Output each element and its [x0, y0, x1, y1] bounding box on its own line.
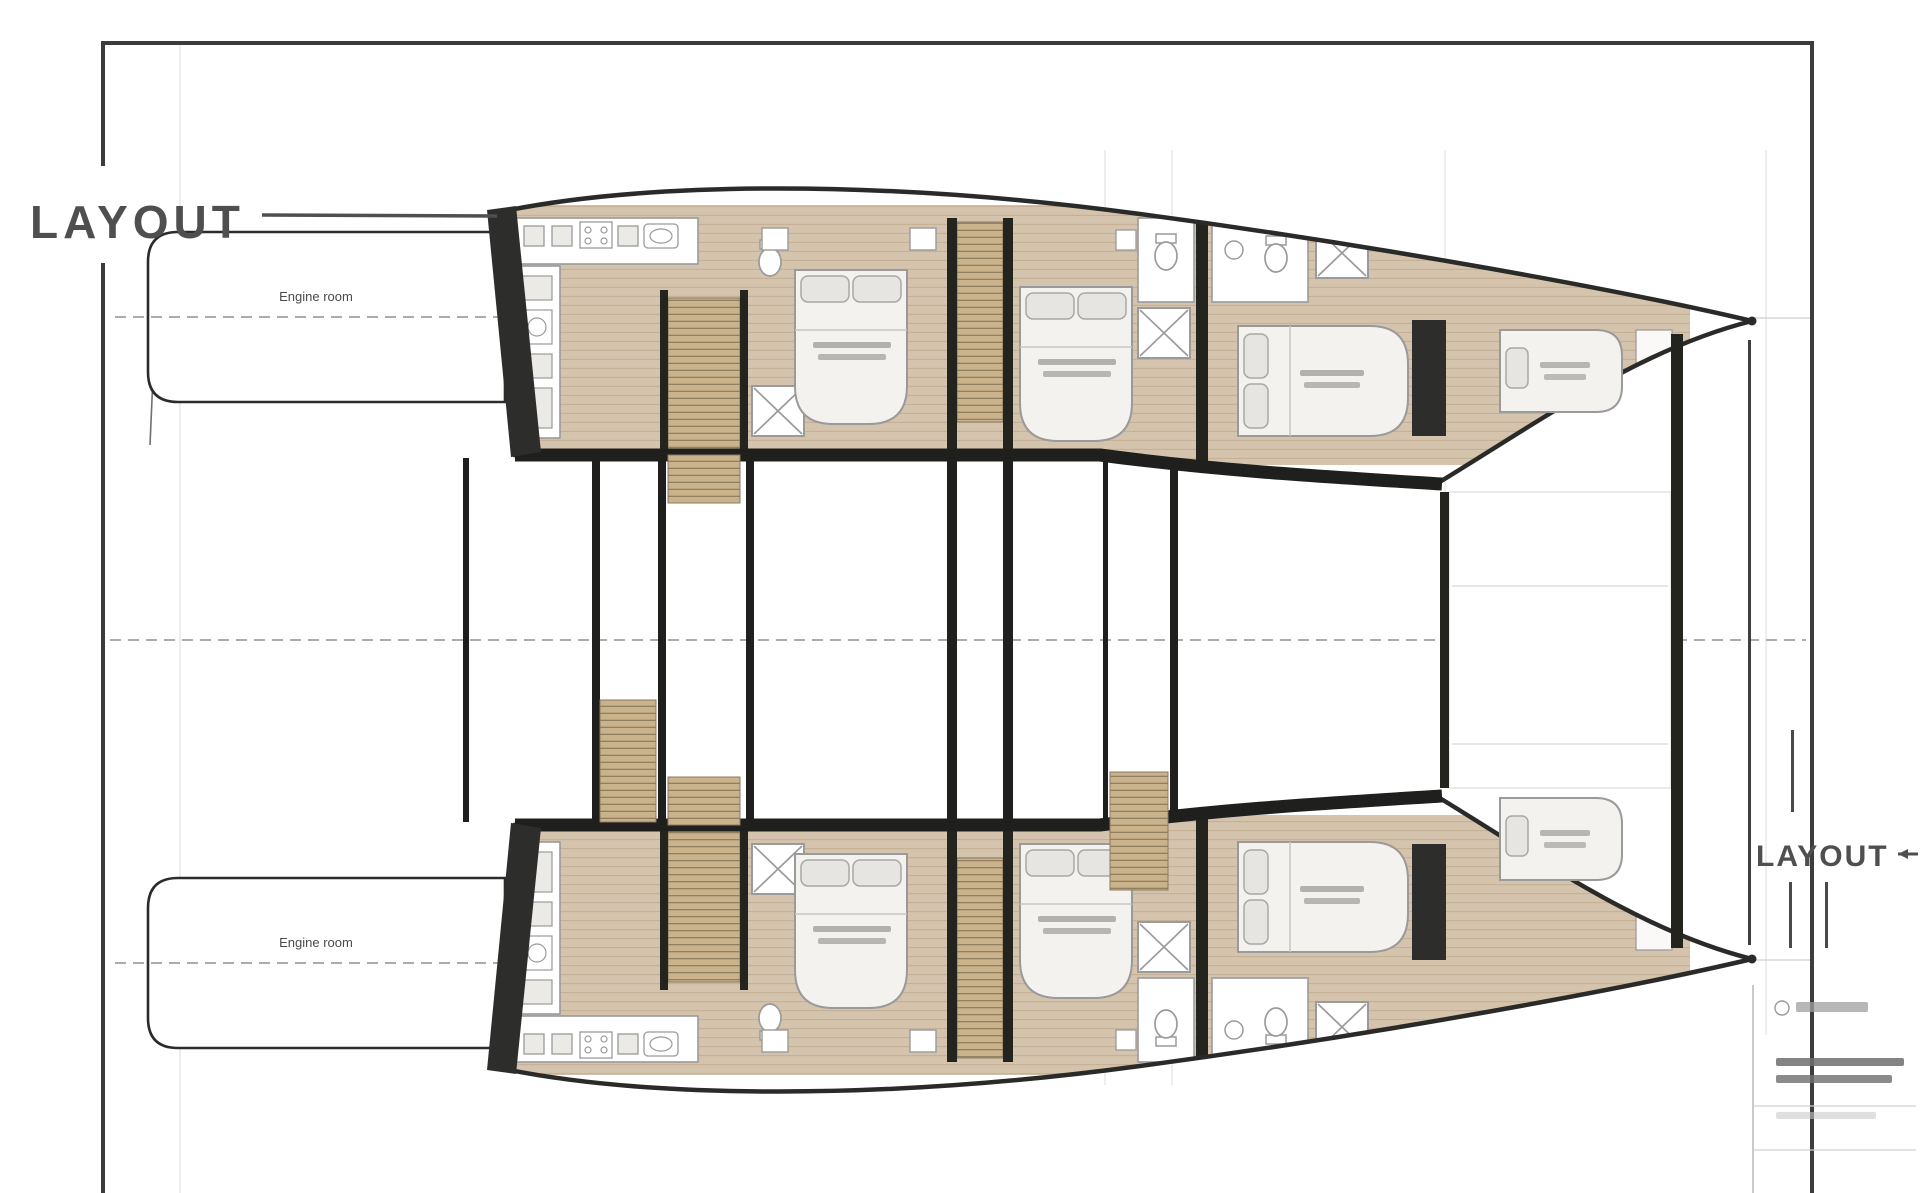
- drawing-sheet: Engine room Engine room LAYOUT LAYOUT: [0, 0, 1920, 1193]
- notes-box: [1753, 985, 1916, 1193]
- forward-crossbeam: [1671, 334, 1683, 948]
- staircase-landing: [668, 455, 740, 503]
- engine-room-bottom: [148, 878, 505, 1048]
- engine-room-bottom-label: Engine room: [279, 935, 353, 950]
- staircase: [600, 700, 656, 822]
- engine-room-top: [148, 232, 505, 402]
- crossbeam-wall: [1440, 492, 1449, 788]
- engine-room-top-label: Engine room: [279, 289, 353, 304]
- page-title-right: LAYOUT: [1756, 840, 1889, 873]
- title-right-group: LAYOUT: [1756, 730, 1918, 948]
- note-text-bar: [1796, 1002, 1868, 1012]
- forestay-line: [1748, 340, 1751, 945]
- title-leader-line: [262, 215, 497, 216]
- arrow-icon: [1898, 849, 1908, 859]
- note-text-bar: [1776, 1075, 1892, 1083]
- page-title: LAYOUT: [30, 196, 245, 248]
- note-text-bar: [1776, 1058, 1904, 1066]
- note-text-bar: [1776, 1112, 1876, 1119]
- layout-plan-svg: Engine room Engine room LAYOUT LAYOUT: [0, 0, 1920, 1193]
- note-marker-icon: [1775, 1001, 1789, 1015]
- staircase: [1110, 772, 1168, 890]
- staircase-landing: [668, 777, 740, 825]
